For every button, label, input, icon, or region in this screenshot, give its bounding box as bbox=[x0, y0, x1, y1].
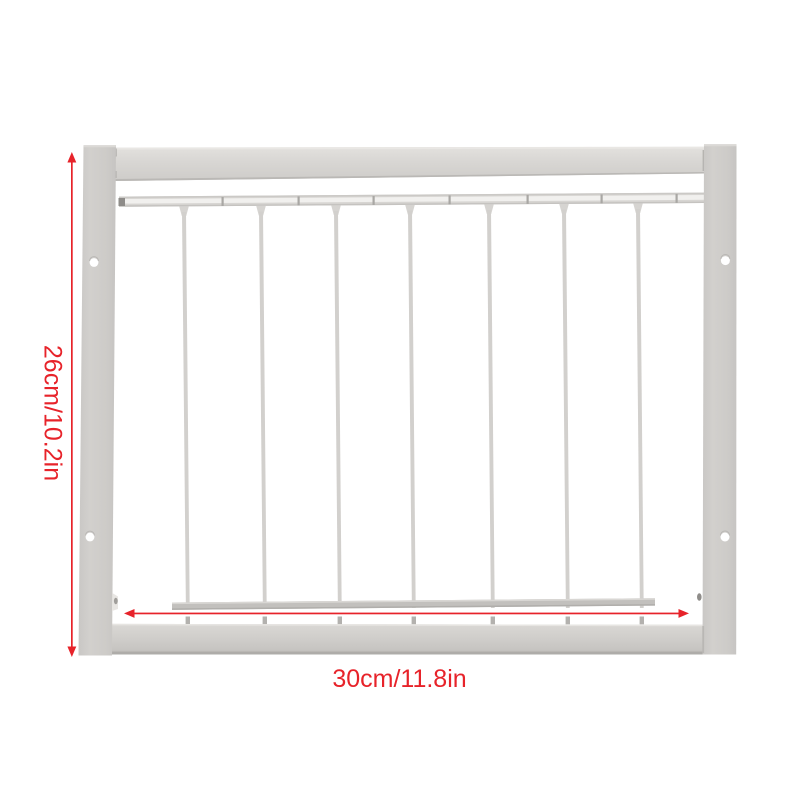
svg-text:30cm/11.8in: 30cm/11.8in bbox=[332, 665, 466, 693]
svg-text:26cm/10.2in: 26cm/10.2in bbox=[39, 345, 67, 481]
